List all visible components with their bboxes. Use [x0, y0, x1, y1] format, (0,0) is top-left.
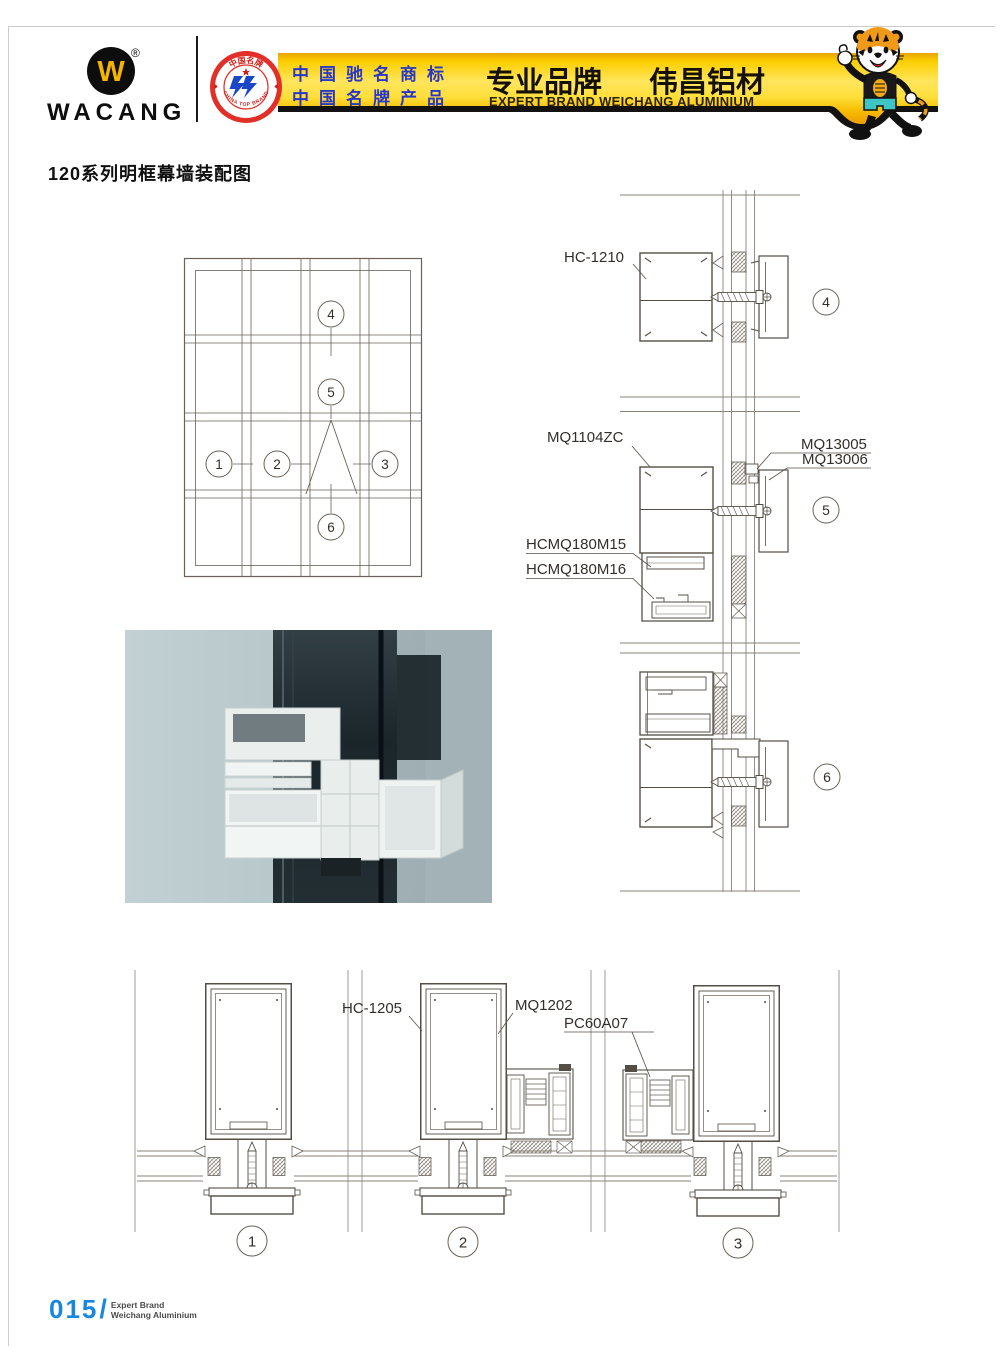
callout-6: 6 — [327, 520, 335, 535]
brand-name: WACANG — [47, 99, 186, 127]
label-hcmq180m16: HCMQ180M16 — [526, 561, 626, 578]
footer-line2: Weichang Aluminium — [111, 1310, 197, 1320]
banner-slogan-en: EXPERT BRAND WEICHANG ALUMINIUM — [489, 94, 754, 109]
label-pc60a07: PC60A07 — [564, 1015, 628, 1032]
page-title: 120系列明框幕墙装配图 — [48, 160, 252, 186]
callout-2: 2 — [273, 457, 281, 472]
label-mq13006: MQ13006 — [802, 451, 868, 468]
vertical-section-details-drawing: HC-1210 4 MQ1104ZC MQ13005 MQ13006 HCMQ1 — [520, 185, 880, 910]
page-number: 015 — [49, 1295, 98, 1323]
footer-brand-text: Expert Brand Weichang Aluminium — [111, 1295, 197, 1320]
callout-1: 1 — [215, 457, 223, 472]
detail5-callout: 5 — [822, 502, 830, 518]
detail4-callout: 4 — [822, 294, 830, 310]
page-footer: 015 / Expert Brand Weichang Aluminium — [49, 1295, 197, 1323]
logo-w-glyph: W — [97, 56, 125, 88]
detail2-callout: 2 — [459, 1235, 467, 1252]
header-divider — [196, 36, 198, 122]
page-edge-line-left — [8, 26, 9, 1346]
detail3-callout: 3 — [734, 1236, 742, 1253]
label-hcmq180m15: HCMQ180M15 — [526, 536, 626, 553]
detail6-callout: 6 — [823, 769, 831, 785]
label-hc1210: HC-1210 — [564, 249, 624, 266]
callout-4: 4 — [327, 307, 335, 322]
label-mq1104zc: MQ1104ZC — [547, 429, 624, 446]
elevation-grid-drawing: 1 2 3 4 5 6 — [180, 254, 428, 584]
label-mq1202: MQ1202 — [515, 997, 573, 1014]
tiger-mascot-icon — [820, 26, 942, 142]
plan-section-details-drawing: HC-1205 MQ1202 PC60A07 1 2 3 — [128, 962, 852, 1262]
detail1-callout: 1 — [248, 1234, 256, 1251]
china-top-brand-badge-icon: 中国名牌 CHINA TOP BRAND — [208, 45, 284, 129]
banner-cn-line1: 中国驰名商标 — [292, 60, 454, 85]
page-number-slash: / — [99, 1295, 107, 1323]
callout-3: 3 — [381, 457, 389, 472]
catalog-page: W ® WACANG 中国驰名商标 中国名牌产品 专业品牌 伟昌铝材 EXPER… — [0, 0, 1000, 1357]
callout-5: 5 — [327, 385, 335, 400]
registered-trademark-icon: ® — [131, 46, 140, 60]
label-hc1205: HC-1205 — [342, 1000, 402, 1017]
profile-3d-photo — [125, 630, 492, 903]
banner-cn-line2: 中国名牌产品 — [292, 84, 454, 109]
footer-line1: Expert Brand — [111, 1300, 164, 1310]
